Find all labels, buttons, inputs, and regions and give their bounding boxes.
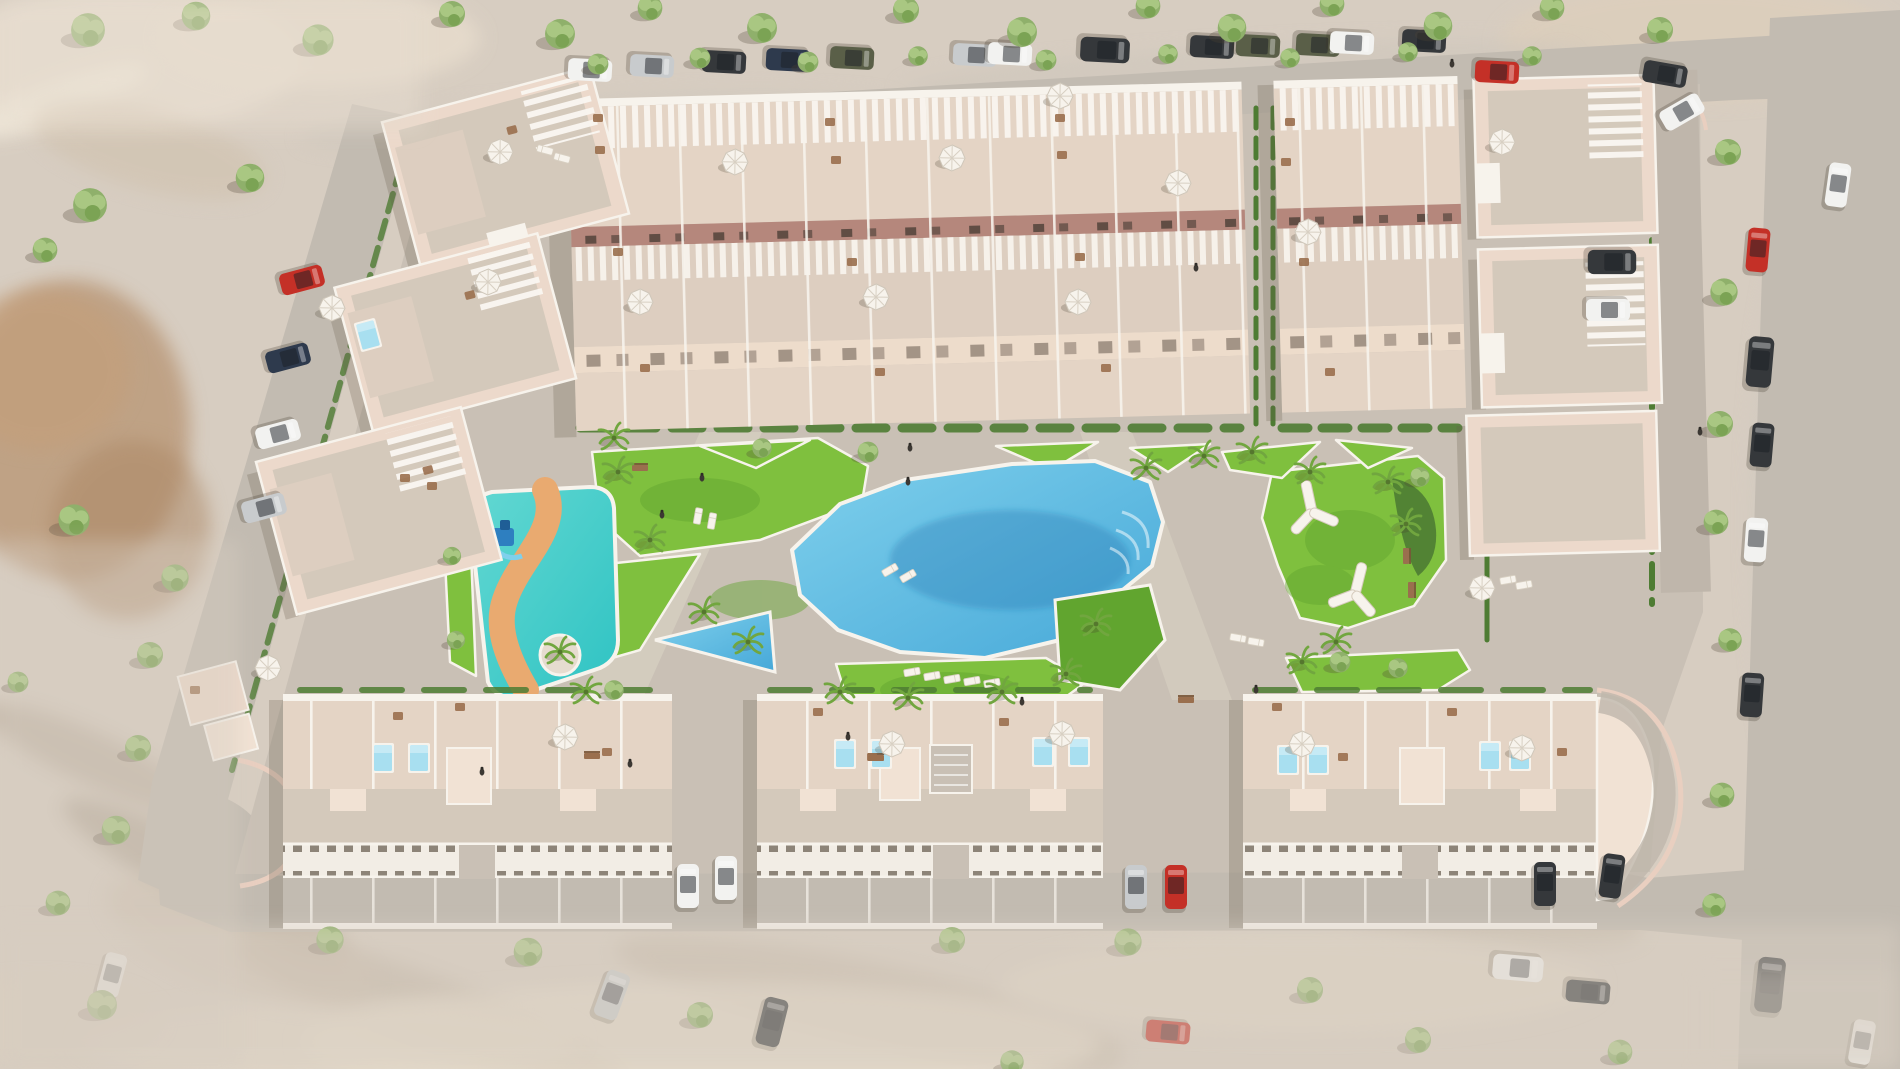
terrace-furniture bbox=[640, 364, 650, 372]
roof-pool bbox=[1479, 741, 1501, 771]
terrace-furniture bbox=[1281, 158, 1291, 166]
car bbox=[1583, 247, 1636, 275]
townhouse-block-top-right bbox=[1257, 76, 1466, 421]
terrace-furniture bbox=[427, 482, 437, 490]
roof-pool bbox=[834, 739, 856, 769]
terrace-furniture bbox=[867, 753, 877, 761]
terrace-furniture bbox=[1285, 118, 1295, 126]
terrace-furniture bbox=[1055, 114, 1065, 122]
car bbox=[1740, 517, 1768, 567]
terrace-furniture bbox=[1299, 258, 1309, 266]
car bbox=[712, 856, 737, 904]
car bbox=[1075, 33, 1130, 64]
terrace-furniture bbox=[1075, 253, 1085, 261]
terrace-furniture bbox=[1447, 708, 1457, 716]
car bbox=[1325, 28, 1374, 55]
car bbox=[625, 51, 674, 78]
terrace-furniture bbox=[455, 703, 465, 711]
aerial-render: Aerial 3D architectural rendering of a r… bbox=[0, 0, 1900, 1069]
bench bbox=[1408, 582, 1416, 598]
terrace-furniture bbox=[813, 708, 823, 716]
terrace-furniture bbox=[1338, 753, 1348, 761]
bench bbox=[584, 751, 600, 759]
terrace-furniture bbox=[875, 368, 885, 376]
terrace-furniture bbox=[400, 474, 410, 482]
apartment-row-middle bbox=[743, 694, 1103, 929]
car bbox=[1741, 335, 1774, 392]
terrace-furniture bbox=[999, 718, 1009, 726]
aerial-render-page: Aerial 3D architectural rendering of a r… bbox=[0, 0, 1900, 1069]
terrace-furniture bbox=[602, 748, 612, 756]
bench bbox=[1178, 695, 1194, 703]
apartment-row-left bbox=[269, 694, 672, 929]
car bbox=[674, 864, 699, 912]
terrace-furniture bbox=[393, 712, 403, 720]
bench bbox=[632, 463, 648, 471]
terrace-furniture bbox=[593, 114, 603, 122]
terrace-furniture bbox=[1557, 748, 1567, 756]
car bbox=[1122, 865, 1147, 913]
villa-right-3 bbox=[1456, 411, 1660, 560]
car bbox=[1746, 422, 1775, 472]
roof-pool bbox=[408, 743, 430, 773]
terrace-furniture bbox=[825, 118, 835, 126]
terrace-furniture bbox=[847, 258, 857, 266]
villa-right-1 bbox=[1463, 75, 1657, 240]
terrace-furniture bbox=[831, 156, 841, 164]
terrace-furniture bbox=[1272, 703, 1282, 711]
car bbox=[825, 43, 874, 70]
terrace-furniture bbox=[1057, 151, 1067, 159]
roof-pool bbox=[372, 743, 394, 773]
car bbox=[1582, 296, 1630, 321]
car bbox=[1531, 862, 1556, 910]
car bbox=[1162, 865, 1187, 913]
terrace-furniture bbox=[613, 248, 623, 256]
bench bbox=[1403, 548, 1411, 564]
lawn-strip-right bbox=[1286, 650, 1470, 692]
car bbox=[1742, 227, 1771, 277]
terrace-furniture bbox=[595, 146, 605, 154]
splash-park bbox=[470, 487, 618, 697]
terrace-furniture bbox=[1101, 364, 1111, 372]
terrace-furniture bbox=[1325, 368, 1335, 376]
car bbox=[1736, 672, 1764, 722]
townhouse-block-top-middle bbox=[546, 82, 1251, 438]
car bbox=[1470, 57, 1519, 84]
